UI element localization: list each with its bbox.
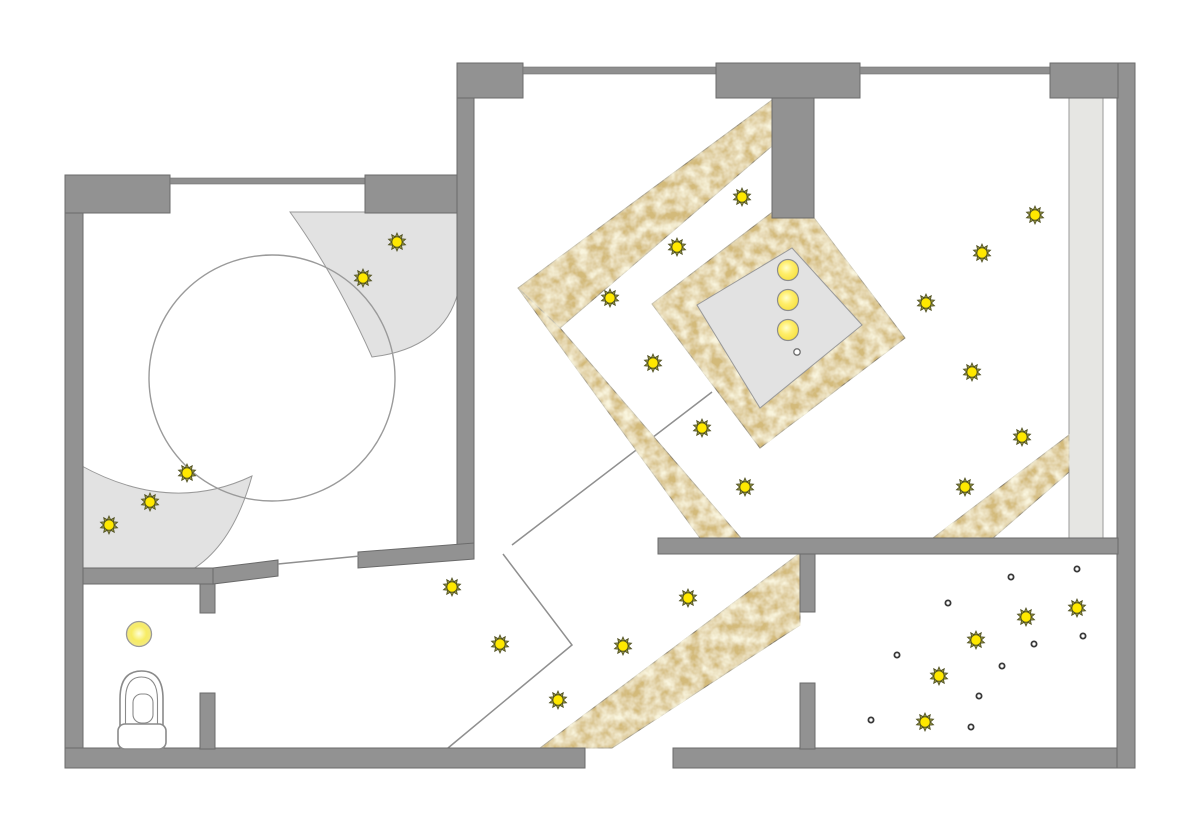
ceiling-circle xyxy=(149,255,395,501)
wall-bath-right-lower xyxy=(200,693,215,749)
fiber-dot-icon xyxy=(968,724,973,729)
dome-light-layer xyxy=(127,622,152,647)
wall-mid-left xyxy=(457,63,474,553)
spot-light-icon xyxy=(679,589,696,607)
pier-t-stem xyxy=(772,98,814,218)
spot-light-icon xyxy=(668,238,685,256)
fiber-dot-icon xyxy=(894,652,899,657)
pier-top-mid-left xyxy=(365,175,458,213)
spot-light-icon xyxy=(1068,599,1085,617)
fiber-dot-icon xyxy=(1031,641,1036,646)
spot-light-icon xyxy=(963,363,980,381)
small-marker-icon xyxy=(794,349,800,355)
pendant-light-icon xyxy=(778,320,799,341)
fiber-dots-layer xyxy=(868,566,1085,729)
wall-bottom-right xyxy=(673,748,1135,768)
toilet-cistern xyxy=(118,724,166,749)
toilet xyxy=(118,671,166,749)
pier-center-left-top xyxy=(457,63,523,98)
floor-plan-page xyxy=(0,0,1200,834)
spot-light-icon xyxy=(601,289,618,307)
wall-bottom-left xyxy=(65,748,585,768)
spot-light-icon xyxy=(956,478,973,496)
wall-slant-a xyxy=(213,560,278,584)
zone-line-hallway-chevron xyxy=(448,554,572,748)
window-pelmet-strip xyxy=(1069,98,1103,538)
spot-light-icon xyxy=(917,294,934,312)
dome-light-icon xyxy=(127,622,152,647)
fiber-dot-icon xyxy=(1080,633,1085,638)
spot-light-icon xyxy=(916,713,933,731)
spot-light-icon xyxy=(736,478,753,496)
spot-light-icon xyxy=(491,635,508,653)
pier-top-left xyxy=(65,175,170,213)
window-top-left-room xyxy=(170,178,366,184)
spot-light-icon xyxy=(443,578,460,596)
spot-light-icon xyxy=(1026,206,1043,224)
fiber-dot-icon xyxy=(976,693,981,698)
wall-mid-horizontal xyxy=(658,538,1118,554)
fiber-dot-icon xyxy=(1074,566,1079,571)
wall-right xyxy=(1117,63,1135,768)
spot-light-icon xyxy=(930,667,947,685)
window-center-right xyxy=(860,67,1050,74)
pendant-light-icon xyxy=(778,290,799,311)
spot-light-icon xyxy=(967,631,984,649)
window-center-left xyxy=(523,67,717,74)
spot-light-icon xyxy=(693,419,710,437)
wall-left xyxy=(65,175,83,768)
spot-light-icon xyxy=(614,637,631,655)
toilet-bowl xyxy=(120,671,163,726)
ceiling-plan-drawing xyxy=(0,0,1200,834)
fiber-dot-icon xyxy=(868,717,873,722)
fiber-dot-icon xyxy=(945,600,950,605)
fiber-dot-icon xyxy=(1008,574,1013,579)
wall-bath-top xyxy=(83,568,213,584)
fiber-dot-icon xyxy=(999,663,1004,668)
spot-light-icon xyxy=(733,188,750,206)
pier-t-top xyxy=(716,63,860,98)
door-line-bathroom xyxy=(278,556,360,564)
spot-light-icon xyxy=(644,354,661,372)
gold-band-right xyxy=(933,435,1069,538)
wall-hall-right-upper xyxy=(800,554,815,612)
wall-bath-right-upper xyxy=(200,583,215,613)
wall-slant-b xyxy=(358,543,474,568)
wall-hall-right-lower xyxy=(800,683,815,749)
spot-light-icon xyxy=(973,244,990,262)
gold-band-hallway xyxy=(540,553,800,748)
spot-light-icon xyxy=(1017,608,1034,626)
pendant-light-icon xyxy=(778,260,799,281)
spot-light-icon xyxy=(549,691,566,709)
spot-light-icon xyxy=(1013,428,1030,446)
pier-top-right xyxy=(1050,63,1118,98)
